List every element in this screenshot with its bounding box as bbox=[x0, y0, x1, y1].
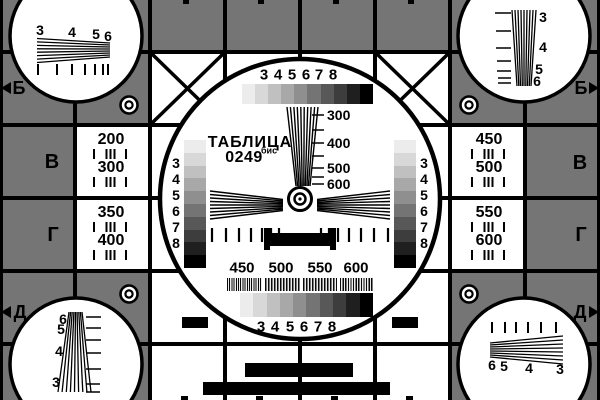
test-card-graphics bbox=[0, 0, 600, 400]
left-column-label: 4 bbox=[172, 172, 180, 186]
registration-target-icon bbox=[121, 286, 138, 303]
right-column-label: 8 bbox=[420, 236, 428, 250]
left-grayscale-column bbox=[184, 140, 206, 268]
tr-wedge-label: 4 bbox=[539, 40, 547, 54]
top-grayscale-label: 7 bbox=[315, 68, 323, 83]
right-column-label: 6 bbox=[420, 204, 428, 218]
left-column-label: 6 bbox=[172, 204, 180, 218]
resolution-cell-value: 600 bbox=[476, 233, 503, 249]
registration-target-icon bbox=[461, 97, 478, 114]
right-column-label: 5 bbox=[420, 188, 428, 202]
burst-label: 500 bbox=[268, 261, 293, 276]
vertical-wedge-label: 300 bbox=[327, 108, 350, 122]
top-grayscale-label: 8 bbox=[329, 68, 337, 83]
right-grayscale-column bbox=[394, 140, 416, 268]
right-column-label: 3 bbox=[420, 156, 428, 170]
right-column-label: 7 bbox=[420, 220, 428, 234]
burst-label: 450 bbox=[229, 261, 254, 276]
left-column-label: 5 bbox=[172, 188, 180, 202]
resolution-cell-value: 350 bbox=[98, 205, 125, 221]
resolution-cell-value: 450 bbox=[476, 132, 503, 148]
top-grayscale-label: 3 bbox=[260, 68, 268, 83]
tl-wedge-label: 5 bbox=[92, 27, 100, 41]
resolution-cell-value: 400 bbox=[98, 233, 125, 249]
vertical-wedge-label: 500 bbox=[327, 161, 350, 175]
left-column-label: 3 bbox=[172, 156, 180, 170]
top-grayscale-label: 5 bbox=[288, 68, 296, 83]
vertical-wedge-label: 400 bbox=[327, 136, 350, 150]
bottom-grayscale-label: 7 bbox=[314, 320, 322, 335]
row-marker-right-b: Б bbox=[575, 79, 588, 97]
left-column-label: 7 bbox=[172, 220, 180, 234]
resolution-cell-value: 550 bbox=[476, 205, 503, 221]
bl-wedge-label: 4 bbox=[55, 344, 63, 358]
burst-label: 550 bbox=[307, 261, 332, 276]
row-marker-right-d: Д bbox=[574, 303, 587, 321]
left-column-label: 8 bbox=[172, 236, 180, 250]
center-target-icon bbox=[289, 188, 312, 211]
burst-segment-550 bbox=[303, 278, 337, 291]
burst-segment-600 bbox=[340, 278, 373, 291]
card-number-suffix: бис bbox=[261, 147, 277, 156]
burst-segment-450 bbox=[227, 278, 262, 291]
resolution-cell-value: 200 bbox=[98, 132, 125, 148]
row-marker-left-d: Д bbox=[14, 303, 27, 321]
tr-wedge-label: 3 bbox=[539, 10, 547, 24]
card-number: 0249 bbox=[225, 150, 263, 166]
resolution-cell-value: 500 bbox=[476, 160, 503, 176]
bottom-grayscale-label: 4 bbox=[271, 320, 279, 335]
row-marker-left-g: Г bbox=[47, 225, 58, 245]
row-marker-right-g: Г bbox=[575, 225, 586, 245]
br-wedge-label: 3 bbox=[556, 362, 564, 376]
top-grayscale-label: 4 bbox=[274, 68, 282, 83]
bottom-grayscale-label: 8 bbox=[328, 320, 336, 335]
br-wedge-label: 5 bbox=[500, 359, 508, 373]
tv-test-card: ТАБЛИЦА 0249 бис 3 4 5 6 7 8 300 400 500… bbox=[0, 0, 600, 400]
bottom-grayscale-label: 6 bbox=[300, 320, 308, 335]
right-column-label: 4 bbox=[420, 172, 428, 186]
registration-target-icon bbox=[121, 97, 138, 114]
bottom-grayscale-label: 5 bbox=[286, 320, 294, 335]
tl-wedge-label: 6 bbox=[104, 29, 112, 43]
resolution-cell-value: 300 bbox=[98, 160, 125, 176]
br-wedge-label: 4 bbox=[525, 361, 533, 375]
vertical-wedge-label: 600 bbox=[327, 177, 350, 191]
bl-wedge-label: 3 bbox=[52, 375, 60, 389]
bl-wedge-label: 5 bbox=[57, 322, 65, 336]
row-marker-right-v: В bbox=[573, 153, 587, 173]
row-marker-left-b: Б bbox=[13, 79, 26, 97]
br-wedge-label: 6 bbox=[488, 358, 496, 372]
bottom-grayscale-label: 3 bbox=[257, 320, 265, 335]
row-marker-left-v: В bbox=[45, 152, 59, 172]
tl-wedge-label: 4 bbox=[68, 25, 76, 39]
tl-wedge-label: 3 bbox=[36, 23, 44, 37]
tr-wedge-label: 6 bbox=[533, 74, 541, 88]
burst-label: 600 bbox=[343, 261, 368, 276]
registration-target-icon bbox=[461, 286, 478, 303]
top-grayscale-staircase bbox=[242, 84, 373, 104]
bottom-grayscale-staircase bbox=[240, 293, 373, 317]
top-grayscale-label: 6 bbox=[302, 68, 310, 83]
burst-segment-500 bbox=[265, 278, 300, 291]
